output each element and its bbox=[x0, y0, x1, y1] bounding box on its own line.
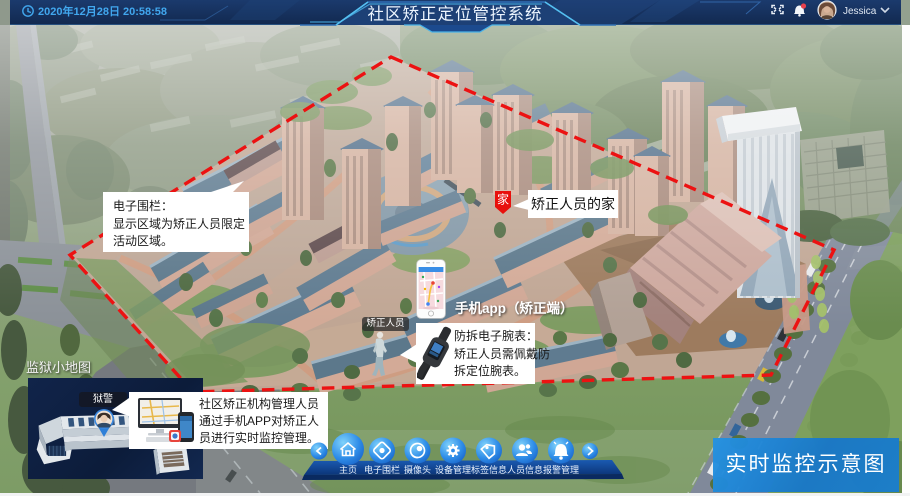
svg-text:社区矫正定位管控系统: 社区矫正定位管控系统 bbox=[368, 5, 543, 24]
svg-text:摄像头: 摄像头 bbox=[404, 464, 431, 475]
svg-text:主页: 主页 bbox=[339, 464, 357, 475]
svg-text:设备管理: 设备管理 bbox=[435, 464, 471, 475]
svg-text:电子围栏: 电子围栏 bbox=[364, 464, 400, 475]
svg-text:报警管理: 报警管理 bbox=[543, 464, 579, 475]
svg-text:2020年12月28日 20:58:58: 2020年12月28日 20:58:58 bbox=[38, 4, 167, 18]
svg-text:家: 家 bbox=[497, 192, 509, 207]
svg-text:标签信息: 标签信息 bbox=[471, 464, 507, 475]
svg-text:人员信息: 人员信息 bbox=[507, 464, 543, 475]
svg-text:Jessica: Jessica bbox=[843, 6, 877, 17]
